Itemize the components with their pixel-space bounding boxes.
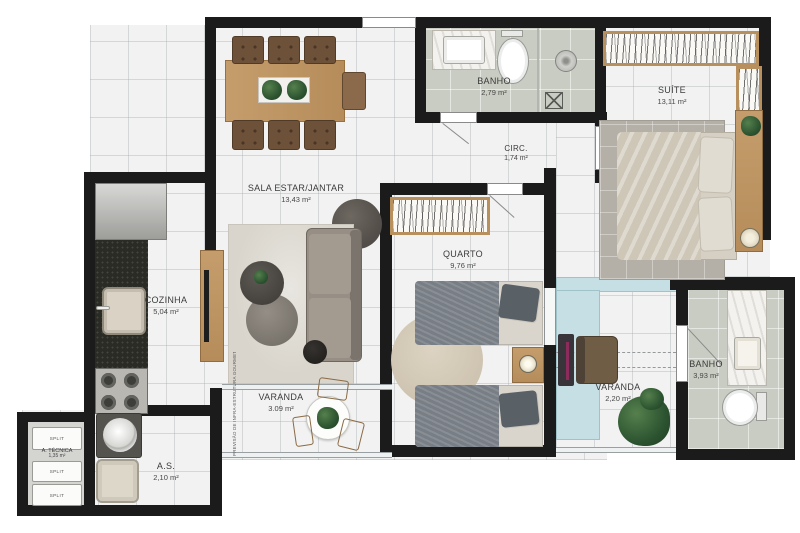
suite-closet-top [603,31,759,66]
wall-tecnica-left [17,412,28,516]
floor-plan: PREVISÃO DE INFRA-ESTRUTURA GOURMET SPLI… [0,0,800,533]
quarto-door [487,183,523,195]
label-area-tecnica-area: 1,35 m² [27,454,87,460]
dining-chair-bottom-3 [304,120,336,150]
banho1-door [440,112,477,123]
label-circ-area: 1,74 m² [486,154,546,163]
desk-chair-back [576,336,585,384]
fridge [95,183,167,240]
kitchen-faucet [96,306,110,310]
label-cozinha-name: COZINHA [126,295,206,307]
laundry-tank [96,459,139,503]
banho1-toilet-tank [501,30,523,37]
entrance-door [362,17,416,28]
varanda-infra-note: PREVISÃO DE INFRA-ESTRUTURA GOURMET [232,352,241,456]
label-sala-name: SALA ESTAR/JANTAR [236,183,356,195]
label-quarto: QUARTO 9,76 m² [413,249,513,270]
label-sala: SALA ESTAR/JANTAR 13,43 m² [236,183,356,204]
stove-burner-1 [101,373,116,388]
wall-banho2-right [784,277,795,460]
label-banho-social: BANHO 2,79 m² [454,76,534,97]
dining-chair-bottom-1 [232,120,264,150]
bed-single-2-blanket [415,385,499,447]
label-circ-name: CIRC. [486,144,546,154]
wall-as-stub [140,405,222,416]
split-unit-2-label: SPLIT [50,469,65,474]
desk-screen [566,342,569,380]
label-banho-suite-name: BANHO [666,359,746,371]
dining-chair-top-2 [268,36,300,64]
label-suite-area: 13,11 m² [632,97,712,107]
varanda1-railing [222,452,392,458]
sofa-cushion-top [309,234,351,294]
quarto-lamp [519,355,537,373]
wall-top [205,17,771,28]
label-suite: SUÍTE 13,11 m² [632,85,712,106]
pouf [303,340,327,364]
coffee-table-plant [254,270,268,284]
varanda2-railing [556,447,676,453]
quarto-window [544,288,556,345]
stove-burner-3 [101,395,116,410]
wall-banho2-left-upper [676,277,688,325]
label-quarto-name: QUARTO [413,249,513,261]
split-unit-2: SPLIT [32,461,82,482]
banho1-shower-head [555,50,577,72]
wall-banho2-bottom [676,449,795,460]
label-area-servico-area: 2,10 m² [136,473,196,483]
label-banho-social-name: BANHO [454,76,534,88]
suite-closet-right [736,66,762,114]
wall-sala-left [205,17,216,260]
label-cozinha-area: 5,04 m² [126,307,206,317]
label-banho-social-area: 2,79 m² [454,88,534,98]
stove-burner-4 [124,395,139,410]
banho1-sink [443,36,485,64]
label-varanda-gourmet: VARANDA 3.09 m² [241,392,321,413]
suite-plant [741,116,761,136]
label-cozinha: COZINHA 5,04 m² [126,295,206,316]
suite-lamp [740,228,760,248]
split-unit-3: SPLIT [32,484,82,506]
label-area-tecnica: A. TÉCNICA 1,35 m² [27,448,87,460]
dining-chair-top-1 [232,36,264,64]
label-varanda: VARANDA 2,20 m² [578,382,658,403]
label-sala-area: 13,43 m² [236,195,356,205]
suite-pillow-2 [698,196,735,252]
label-area-servico: A.S. 2,10 m² [136,461,196,482]
banho1-shower-partition [537,28,539,112]
label-suite-name: SUÍTE [632,85,712,97]
wall-banho2-left-lower [676,382,688,460]
dining-plant-1 [262,80,282,100]
label-banho-suite: BANHO 3,93 m² [666,359,746,380]
wall-tecnica-top [17,412,89,422]
label-quarto-area: 9,76 m² [413,261,513,271]
sala-varanda-glass-door [222,384,392,390]
varanda-chair-top [317,377,349,401]
dining-chair-top-3 [304,36,336,64]
split-unit-3-label: SPLIT [50,493,65,498]
split-unit-1-label: SPLIT [50,436,65,441]
label-varanda-gourmet-area: 3.09 m² [241,404,321,414]
banho1-drain [545,92,563,109]
wall-kitchen-top [84,172,216,183]
washing-machine-drum [103,418,137,452]
bed-single-2-pillow [498,390,539,428]
label-varanda-name: VARANDA [578,382,658,394]
quarto-closet [390,197,490,235]
banho2-toilet [722,389,758,426]
split-unit-1: SPLIT [32,427,82,450]
wall-quarto-top [380,183,556,195]
label-circ: CIRC. 1,74 m² [486,144,546,163]
dining-chair-end [342,72,366,110]
label-banho-suite-area: 3,93 m² [666,371,746,381]
bed-single-1-blanket [415,281,499,345]
label-varanda-gourmet-name: VARANDA [241,392,321,404]
label-area-servico-name: A.S. [136,461,196,473]
dining-plant-2 [287,80,307,100]
bed-single-1-pillow [498,284,540,323]
suite-bed-duvet [617,132,701,260]
wall-kitchen-left [84,172,95,516]
stove-burner-2 [124,373,139,388]
dining-chair-bottom-2 [268,120,300,150]
wall-banho1-left [415,17,426,123]
label-varanda-area: 2,20 m² [578,394,658,404]
sofa-backrest [350,230,361,360]
suite-pillow-1 [698,136,735,194]
wall-bottom-left [17,505,222,516]
